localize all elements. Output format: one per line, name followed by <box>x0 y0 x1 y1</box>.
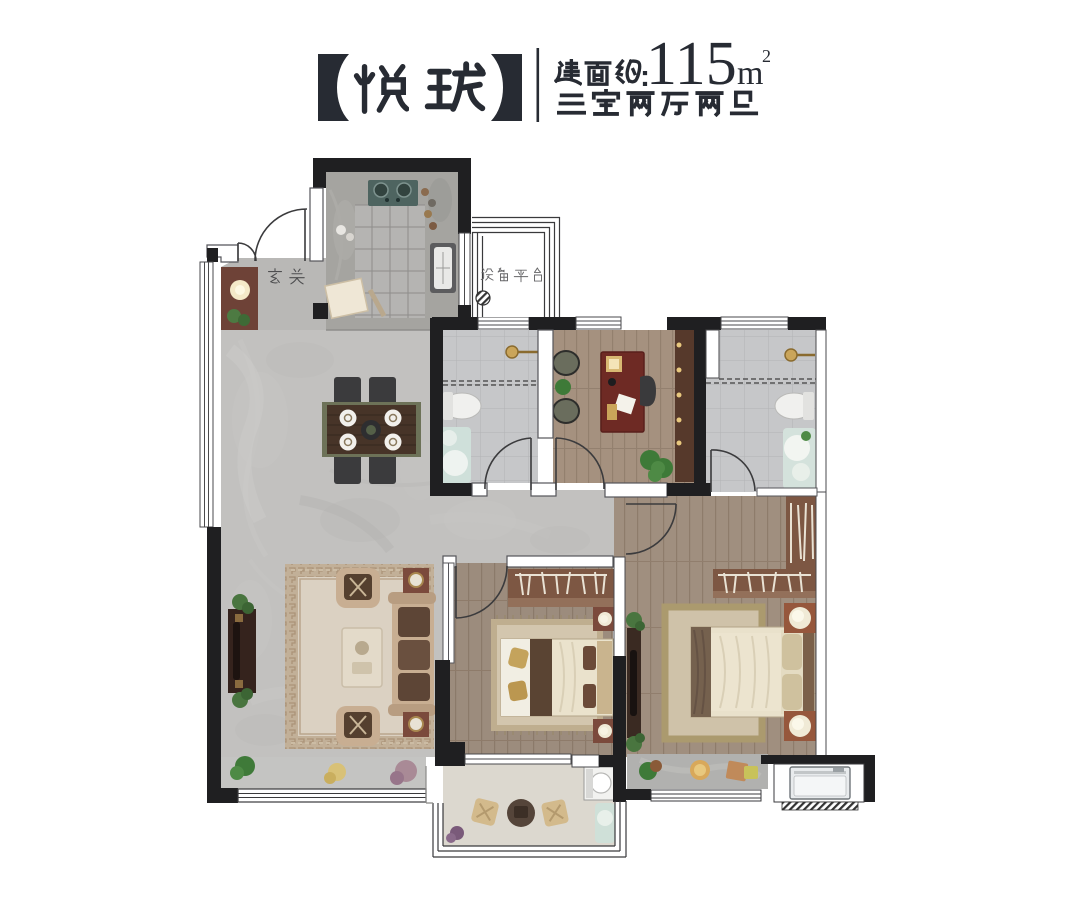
svg-text:2: 2 <box>762 46 771 66</box>
svg-text:m: m <box>737 55 763 92</box>
svg-text:115: 115 <box>646 30 737 98</box>
